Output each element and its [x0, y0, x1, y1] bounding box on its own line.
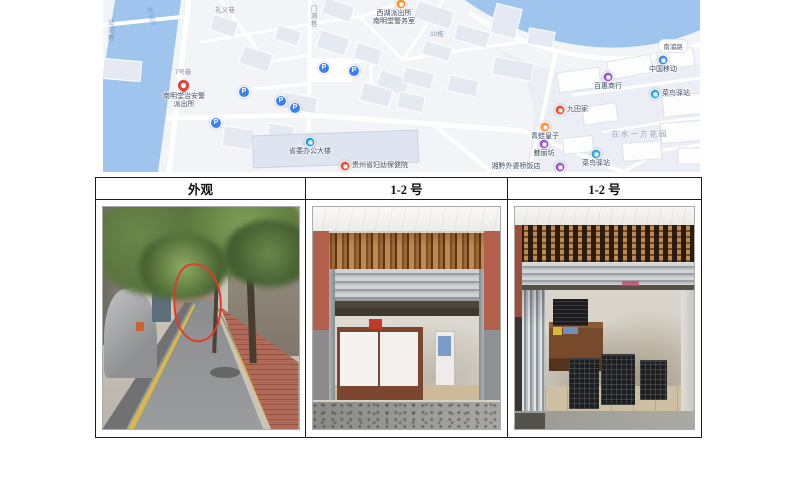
right-pillar: [484, 231, 500, 411]
map-road-label: 门洞巷: [307, 5, 317, 28]
dark-step: [515, 413, 545, 429]
parking-icon[interactable]: P: [238, 86, 250, 98]
map-road-label: 南明河: [145, 5, 160, 26]
map-poi-label: 西湖派出所 南明堂警务室: [373, 10, 415, 27]
header-exterior: 外观: [96, 178, 306, 200]
car-cover-tag: [136, 322, 144, 331]
shutter-bottom-rail: [329, 301, 484, 308]
police-post-poi[interactable]: [396, 0, 407, 10]
map-markers-layer: PPPPPP南明堂治安警 派出所西湖派出所 南明堂警务室省委办公大楼贵州省妇幼保…: [103, 0, 700, 172]
rolled-shutter: [520, 263, 694, 285]
map-road-label: 7号巷: [175, 66, 192, 76]
china-mobile-poi[interactable]: [658, 55, 669, 66]
map-road-label: 礼义巷: [215, 4, 235, 14]
cell-shop-b: [508, 200, 701, 437]
yellow-item-on-desk: [553, 327, 562, 335]
wood-lattice-band: [515, 225, 694, 263]
map-poi-label: 省委办公大楼: [289, 148, 331, 156]
counter-panel: [340, 332, 377, 385]
police-station-pin[interactable]: [178, 80, 190, 92]
shop-ceiling: [515, 207, 694, 225]
hospital-poi[interactable]: [340, 161, 351, 172]
left-pillar: [515, 225, 522, 429]
alley-exterior-photo[interactable]: [102, 206, 300, 430]
counter-panel: [380, 332, 417, 385]
restaurant-poi[interactable]: [555, 105, 566, 116]
black-crate-on-desk: [553, 299, 589, 326]
map[interactable]: PPPPPP南明堂治安警 派出所西湖派出所 南明堂警务室省委办公大楼贵州省妇幼保…: [103, 0, 700, 172]
rollup-shutter: [326, 269, 487, 302]
map-road-label: 南浦路: [658, 39, 688, 53]
manhole-cover: [210, 367, 239, 378]
parking-icon[interactable]: P: [289, 102, 301, 114]
map-road-label: 10栋: [430, 28, 444, 38]
map-poi-label: 百惠商行: [594, 83, 622, 91]
document-page: PPPPPP南明堂治安警 派出所西湖派出所 南明堂警务室省委办公大楼贵州省妇幼保…: [0, 0, 800, 500]
red-object-on-counter: [369, 319, 382, 329]
header-shop-1-2b: 1-2 号: [508, 178, 701, 200]
map-poi-label: 九田家: [567, 106, 588, 114]
map-road-label: 沿河巷: [104, 19, 114, 42]
map-poi-label: 菜鸟驿站: [662, 90, 690, 98]
map-area-label: 在水一方花园: [612, 129, 669, 140]
shop-counter-photo[interactable]: [312, 206, 501, 430]
folding-accordion-door: [522, 290, 545, 415]
red-graffiti-mark: [622, 281, 638, 285]
blue-paper-on-desk: [563, 327, 577, 334]
cell-shop-a: [306, 200, 508, 437]
black-plastic-crate: [569, 358, 599, 409]
photo-table: 外观 1-2 号 1-2 号: [95, 177, 702, 438]
interior-dark-strip: [335, 308, 479, 316]
shutter-track-left: [329, 269, 335, 402]
parking-icon[interactable]: P: [348, 65, 360, 77]
kids-shop-poi[interactable]: [540, 122, 551, 133]
cainiao-station-poi[interactable]: [650, 89, 661, 100]
restaurant-poi-2[interactable]: [555, 162, 566, 173]
map-poi-label: 贵州省妇幼保健院: [352, 162, 408, 170]
shop-ceiling: [313, 207, 500, 231]
right-pillar: [681, 290, 694, 429]
shop-crates-photo[interactable]: [514, 206, 695, 430]
map-poi-label: 中国移动: [649, 66, 677, 74]
table-photo-row: [96, 200, 701, 437]
parking-icon[interactable]: P: [210, 117, 222, 129]
parking-icon[interactable]: P: [318, 62, 330, 74]
shop-poi[interactable]: [603, 72, 614, 83]
table-header-row: 外观 1-2 号 1-2 号: [96, 178, 701, 200]
wood-slat-band: [313, 231, 500, 269]
front-ground: [313, 402, 500, 429]
government-building-poi[interactable]: [305, 137, 316, 148]
map-poi-label: 湘黔外婆桥饭店: [492, 163, 541, 171]
header-shop-1-2a: 1-2 号: [306, 178, 508, 200]
map-poi-label: 魅丽坊: [534, 150, 555, 158]
cell-exterior: [96, 200, 306, 437]
cabinet-poster: [438, 336, 451, 356]
cainiao-station-poi-2[interactable]: [591, 149, 602, 160]
black-plastic-crate: [601, 354, 635, 405]
parking-icon[interactable]: P: [275, 95, 287, 107]
covered-car: [104, 289, 157, 378]
left-pillar: [313, 231, 329, 411]
black-plastic-crate: [640, 360, 667, 400]
map-poi-label: 菜鸟驿站: [582, 160, 610, 168]
map-poi-label: 南明堂治安警 派出所: [163, 93, 205, 110]
map-poi-label: 青蛙皇子: [531, 133, 559, 141]
